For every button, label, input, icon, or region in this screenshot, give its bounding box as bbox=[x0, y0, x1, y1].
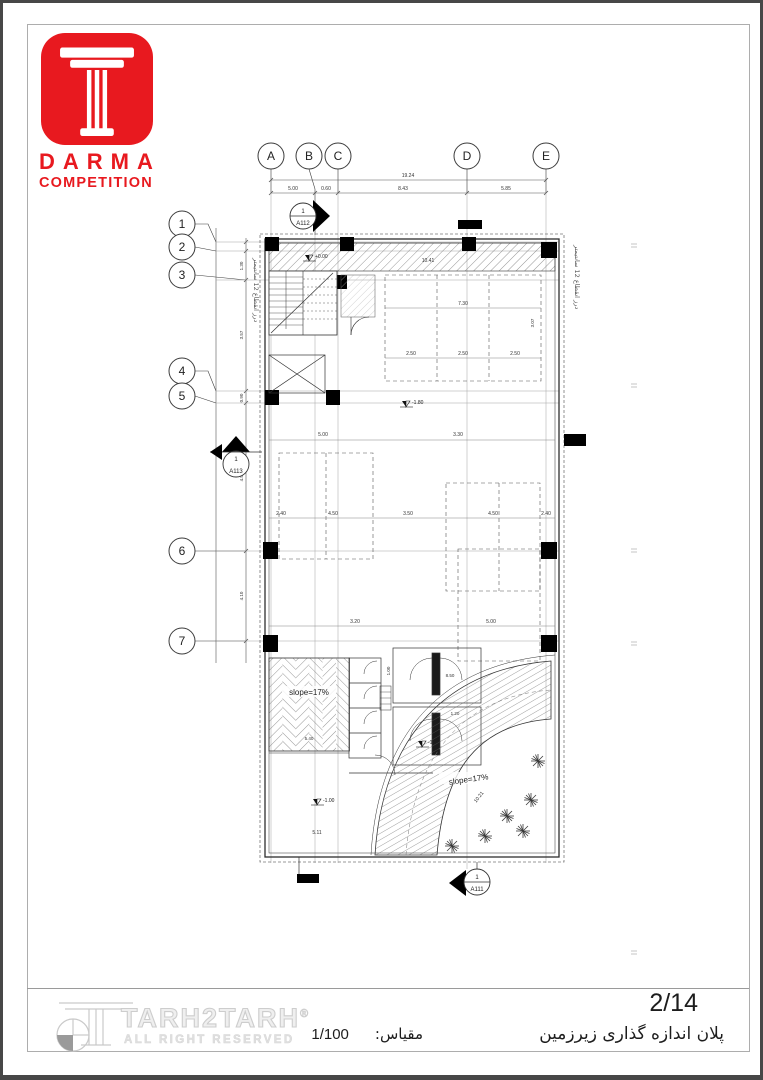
dim-mid-b4: 4.50 bbox=[488, 511, 498, 517]
grid-bubble-2: 2 bbox=[179, 240, 186, 254]
marker-a113-sheet: A113 bbox=[229, 469, 243, 475]
dim-parking-width: 7.30 bbox=[458, 301, 468, 307]
dim-mid-b2: 4.50 bbox=[328, 511, 338, 517]
ramp-length-label: 10.21 bbox=[473, 790, 486, 804]
dim-wc-3: 1.00 bbox=[386, 666, 391, 675]
dim-left-1: 1.30 bbox=[239, 261, 244, 270]
joint-note-right: درز انقطاع 12 سانتیمتر bbox=[573, 244, 581, 309]
dim-wc-1: 8.50 bbox=[446, 673, 455, 678]
section-marker-a112 bbox=[290, 200, 330, 232]
grid-bubble-6: 6 bbox=[179, 544, 186, 558]
scale-value: 1/100 bbox=[311, 1026, 349, 1043]
floor-plan-drawing: A B C D E 19.24 5.00 0.60 8.43 5.85 bbox=[3, 3, 763, 1080]
dim-stall-3: 2.50 bbox=[510, 351, 520, 357]
grid-bubble-B: B bbox=[305, 149, 313, 163]
margin-ticks bbox=[631, 244, 637, 954]
scale-row: مقیاس:1/100 bbox=[231, 1025, 423, 1043]
ramp-slope-label-left: slope=17% bbox=[289, 688, 329, 697]
title-block-divider bbox=[27, 988, 749, 989]
dim-mid-b3: 3.50 bbox=[403, 511, 413, 517]
drawing-sheet: DARMA COMPETITION bbox=[0, 0, 763, 1080]
joint-note-left: درز انقطاع 12 سانتیمتر bbox=[252, 257, 260, 322]
lobby-door bbox=[351, 317, 369, 335]
dim-band: 10.41 bbox=[422, 258, 435, 264]
grid-bubble-4: 4 bbox=[179, 364, 186, 378]
dim-left-2: 3.57 bbox=[239, 330, 244, 339]
grid-bubble-3: 3 bbox=[179, 268, 186, 282]
dim-top-4: 5.85 bbox=[501, 186, 511, 192]
grid-bubble-E: E bbox=[542, 149, 550, 163]
dim-mid-a2: 3.30 bbox=[453, 432, 463, 438]
sheet-title: پلان اندازه گذاری زیرزمین bbox=[539, 1024, 724, 1044]
registered-mark: ® bbox=[300, 1008, 310, 1020]
dim-low-2: 5.00 bbox=[486, 619, 496, 625]
marker-a111-sheet: A111 bbox=[470, 887, 484, 893]
grid-bubble-7: 7 bbox=[179, 634, 186, 648]
dim-left-5: 4.10 bbox=[239, 591, 244, 600]
level-mid: -1.80 bbox=[412, 400, 424, 406]
dim-top-3: 8.43 bbox=[398, 186, 408, 192]
dim-left-3: 0.90 bbox=[239, 393, 244, 402]
level-yard: -1.00 bbox=[323, 798, 335, 804]
grid-bubble-D: D bbox=[463, 149, 472, 163]
dim-top-1: 5.00 bbox=[288, 186, 298, 192]
grid-bubble-5: 5 bbox=[179, 389, 186, 403]
level-ground: +0.00 bbox=[315, 254, 328, 260]
grid-lines bbox=[216, 193, 559, 869]
stair bbox=[269, 271, 337, 335]
elevator-shaft bbox=[269, 355, 325, 393]
dim-parking-depth: 3.07 bbox=[530, 318, 535, 327]
dim-top-2: 0.60 bbox=[321, 186, 331, 192]
dim-mid-b5: 2.40 bbox=[541, 511, 551, 517]
dim-mid-a1: 5.00 bbox=[318, 432, 328, 438]
dim-stall-2: 2.50 bbox=[458, 351, 468, 357]
marker-a112-sheet: A112 bbox=[296, 221, 310, 227]
dim-top-overall: 19.24 bbox=[402, 173, 415, 179]
dim-mid-b1: 2.40 bbox=[276, 511, 286, 517]
grid-bubble-C: C bbox=[334, 149, 343, 163]
curved-ramp bbox=[371, 655, 555, 855]
dim-stall-1: 2.50 bbox=[406, 351, 416, 357]
grid-bubble-A: A bbox=[267, 149, 275, 163]
grid-bubble-1: 1 bbox=[179, 217, 186, 231]
dim-low-3: 5.11 bbox=[312, 830, 322, 836]
dim-low-1: 3.20 bbox=[350, 619, 360, 625]
dim-wc-4: 5.40 bbox=[305, 736, 314, 741]
lobby-hatched bbox=[341, 275, 375, 317]
scale-label: مقیاس: bbox=[375, 1025, 423, 1043]
sheet-number: 2/14 bbox=[649, 989, 698, 1018]
